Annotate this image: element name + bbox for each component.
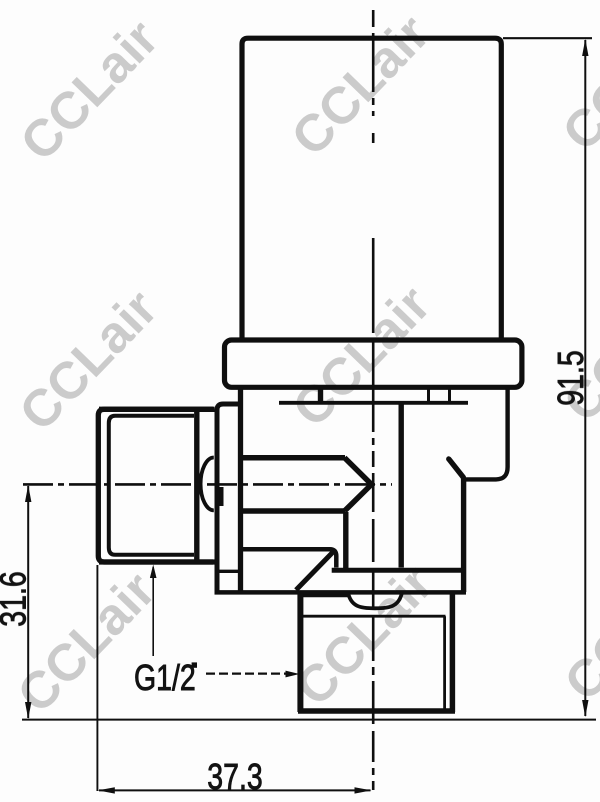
svg-text:31.6: 31.6 [0,571,33,626]
svg-text:91.5: 91.5 [550,350,591,405]
svg-text:G1/2: G1/2 [134,657,196,698]
svg-text:37.3: 37.3 [207,756,262,797]
